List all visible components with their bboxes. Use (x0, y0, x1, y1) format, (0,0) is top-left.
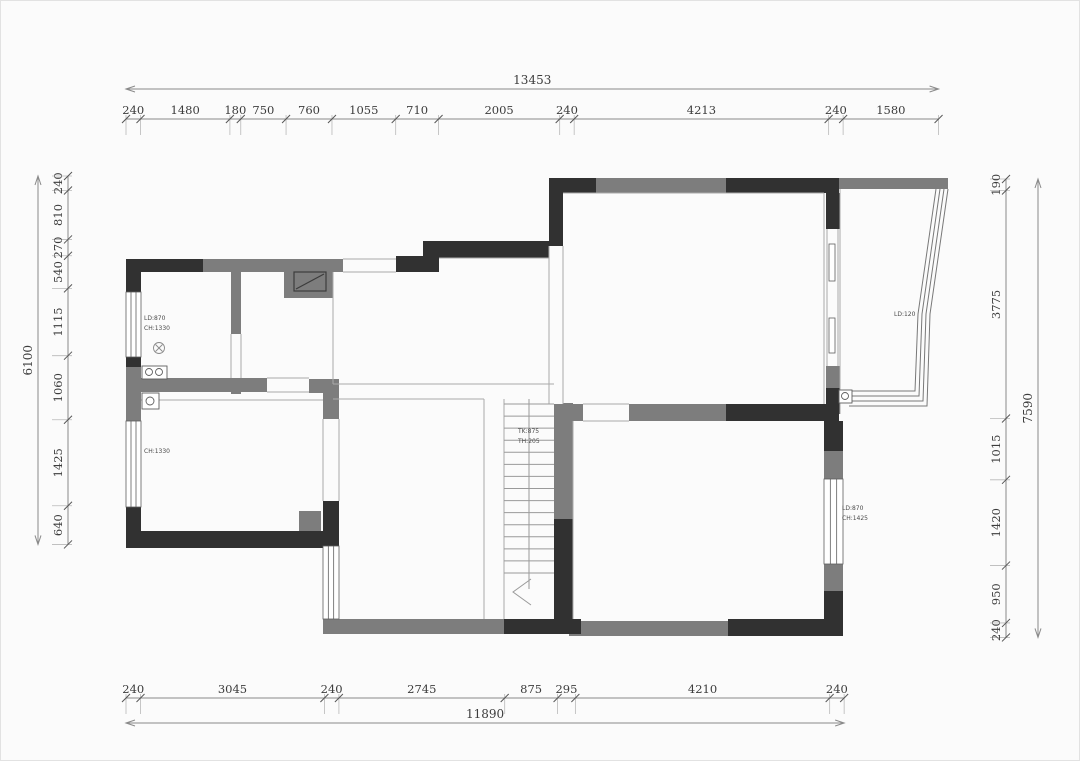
dimension-label: 875 (520, 682, 542, 696)
wall-segment (569, 621, 728, 636)
dimension-label: 1420 (989, 508, 1003, 537)
overall-dimension-label: 13453 (513, 73, 551, 87)
wall-segment (126, 357, 141, 367)
room-annotation: LD:870 (842, 505, 864, 512)
sliding-door-panel (829, 318, 835, 353)
wall-segment (203, 259, 343, 272)
wall-opening (231, 334, 241, 378)
wall-opening (583, 404, 629, 421)
balcony-fixture (839, 390, 852, 403)
dimension-label: 1015 (989, 434, 1003, 463)
room-annotation: TK:875 (517, 428, 539, 435)
wall-segment (826, 193, 840, 229)
room-annotation: CH:1330 (144, 448, 170, 455)
room-annotation: TH:205 (517, 438, 540, 445)
dimension-label: 640 (51, 514, 65, 536)
sliding-door-panel (829, 244, 835, 281)
overall-dimension-label: 7590 (1021, 393, 1035, 424)
wall-segment (629, 404, 726, 421)
dimension-label: 240 (122, 682, 144, 696)
dimension-label: 950 (989, 583, 1003, 605)
balcony-glazing-line (849, 189, 948, 406)
wall-segment (839, 178, 948, 189)
dimension-label: 240 (989, 619, 1003, 641)
wall-segment (323, 619, 504, 634)
wall-segment (126, 531, 338, 548)
dimension-label: 190 (989, 174, 1003, 196)
window (126, 421, 141, 507)
dimension-label: 240 (122, 103, 144, 117)
wall-segment (423, 241, 559, 258)
wall-segment (126, 378, 267, 392)
dimension-label: 180 (224, 103, 246, 117)
wall-segment (231, 378, 241, 394)
floor-plan-page: LD:870CH:1330CH:1330TK:875TH:205LD:120LD… (0, 0, 1080, 761)
balcony-glazing-line (849, 189, 936, 391)
overall-dimension-label: 11890 (466, 707, 504, 721)
window (126, 292, 141, 357)
wall-segment (556, 404, 583, 421)
dimension-label: 4213 (687, 103, 716, 117)
wall-segment (596, 178, 726, 193)
wall-segment (231, 272, 241, 334)
overall-dimension-label: 6100 (21, 345, 35, 376)
dimension-label: 4210 (688, 682, 717, 696)
window (824, 479, 843, 564)
dimension-label: 3775 (989, 290, 1003, 319)
wall-segment (504, 619, 581, 634)
wall-segment (126, 367, 141, 421)
wall-segment (299, 511, 321, 531)
wall-segment (826, 366, 840, 388)
room-annotation: LD:870 (144, 315, 166, 322)
floor-plan-drawing: LD:870CH:1330CH:1330TK:875TH:205LD:120LD… (1, 1, 1080, 761)
wall-segment (323, 501, 339, 546)
dimension-label: 240 (826, 682, 848, 696)
wall-segment (726, 178, 839, 193)
dimension-label: 760 (298, 103, 320, 117)
dimension-label: 270 (51, 237, 65, 259)
dimension-label: 750 (252, 103, 274, 117)
window (323, 546, 339, 619)
dimension-label: 1115 (51, 307, 65, 336)
dimension-label: 1580 (876, 103, 905, 117)
wall-segment (323, 391, 339, 419)
balcony-glazing-line (849, 189, 940, 396)
balcony-glazing-line (849, 189, 944, 401)
wall-opening (323, 419, 339, 501)
dimension-label: 240 (556, 103, 578, 117)
dimension-label: 1055 (349, 103, 378, 117)
room-annotation: LD:120 (894, 311, 916, 318)
dimension-label: 1425 (51, 448, 65, 477)
wall-segment (549, 178, 596, 193)
dimension-label: 2005 (484, 103, 513, 117)
wall-segment (824, 421, 843, 451)
dimension-label: 1480 (171, 103, 200, 117)
wall-segment (824, 451, 843, 479)
dimension-label: 540 (51, 261, 65, 283)
dimension-label: 295 (555, 682, 577, 696)
dimension-label: 1060 (51, 373, 65, 402)
wall-opening (267, 378, 309, 392)
wall-segment (396, 256, 439, 272)
wall-segment (824, 591, 843, 636)
wall-segment (554, 519, 573, 634)
dimension-label: 240 (825, 103, 847, 117)
wall-segment (126, 259, 141, 292)
wall-segment (824, 564, 843, 591)
room-annotation: CH:1330 (144, 325, 170, 332)
wall-opening (343, 259, 396, 272)
dimension-label: 240 (321, 682, 343, 696)
stair-direction-arrow (513, 579, 531, 605)
dimension-label: 710 (406, 103, 428, 117)
column-fixture (142, 393, 159, 409)
wall-segment (726, 404, 839, 421)
dimension-label: 3045 (218, 682, 247, 696)
wall-segment (309, 379, 339, 393)
room-annotation: CH:1425 (842, 515, 868, 522)
wall-opening (549, 246, 563, 404)
dimension-label: 810 (51, 204, 65, 226)
dimension-label: 2745 (407, 682, 436, 696)
dimension-label: 240 (51, 172, 65, 194)
